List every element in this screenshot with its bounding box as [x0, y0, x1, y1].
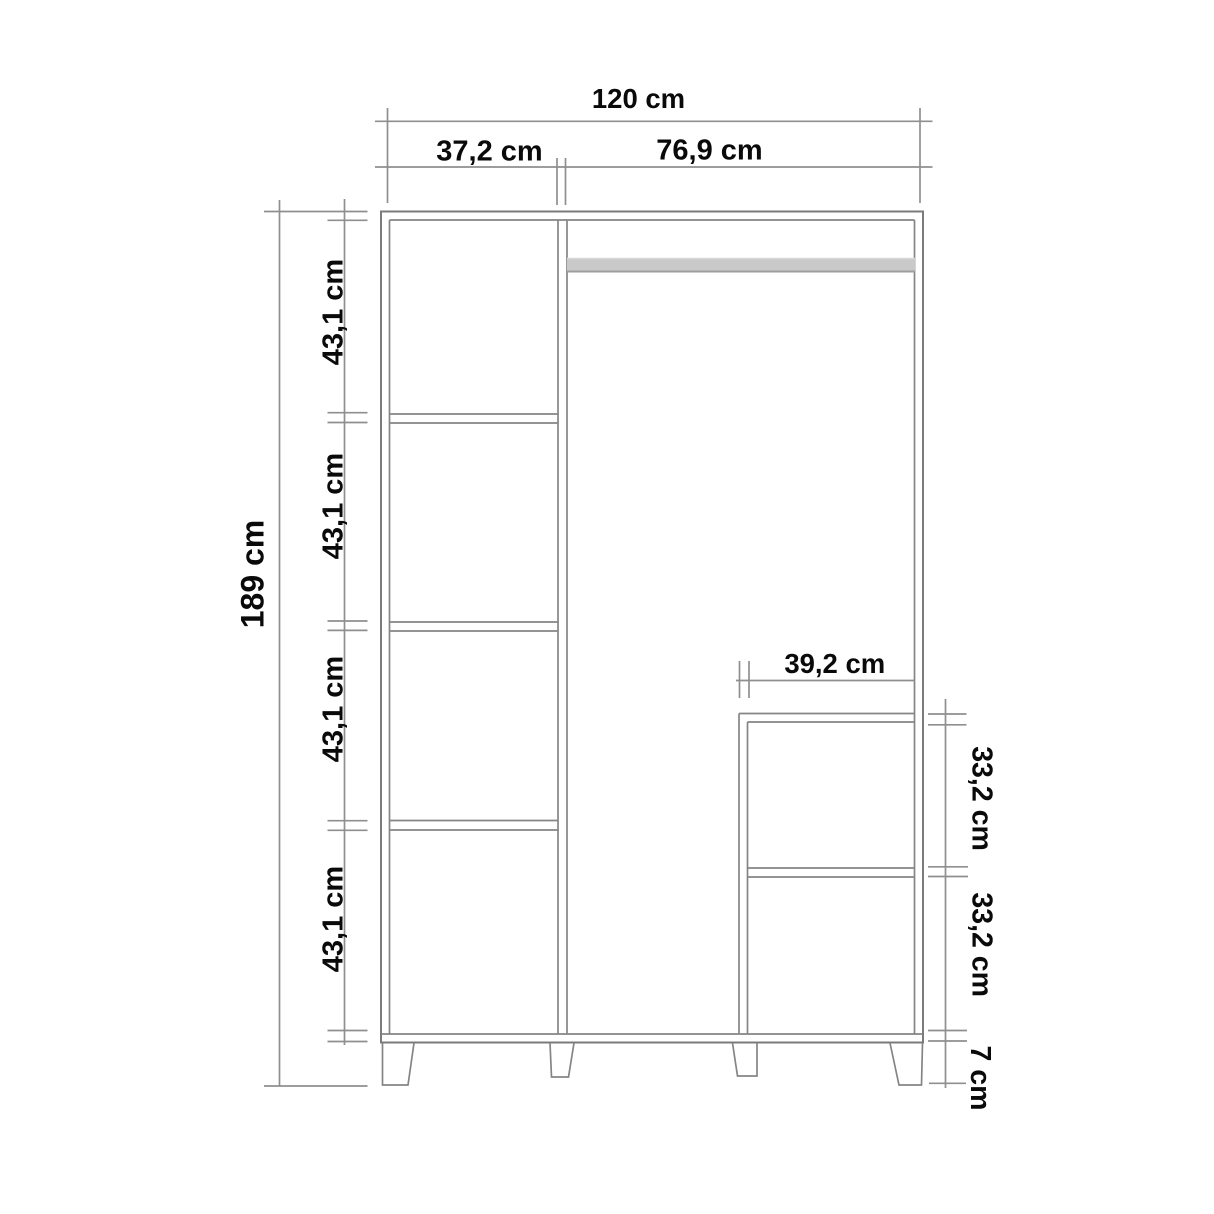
svg-text:189 cm: 189 cm	[235, 520, 271, 629]
svg-text:43,1 cm: 43,1 cm	[318, 866, 350, 972]
svg-text:43,1 cm: 43,1 cm	[318, 259, 350, 365]
svg-text:43,1 cm: 43,1 cm	[318, 656, 350, 762]
svg-text:7 cm: 7 cm	[964, 1046, 996, 1111]
svg-text:39,2 cm: 39,2 cm	[784, 648, 885, 679]
svg-text:33,2 cm: 33,2 cm	[966, 892, 998, 997]
svg-text:33,2 cm: 33,2 cm	[966, 746, 998, 851]
svg-text:43,1 cm: 43,1 cm	[318, 453, 350, 559]
svg-text:76,9 cm: 76,9 cm	[656, 135, 762, 167]
svg-text:120 cm: 120 cm	[592, 83, 685, 114]
svg-text:37,2 cm: 37,2 cm	[436, 136, 542, 168]
